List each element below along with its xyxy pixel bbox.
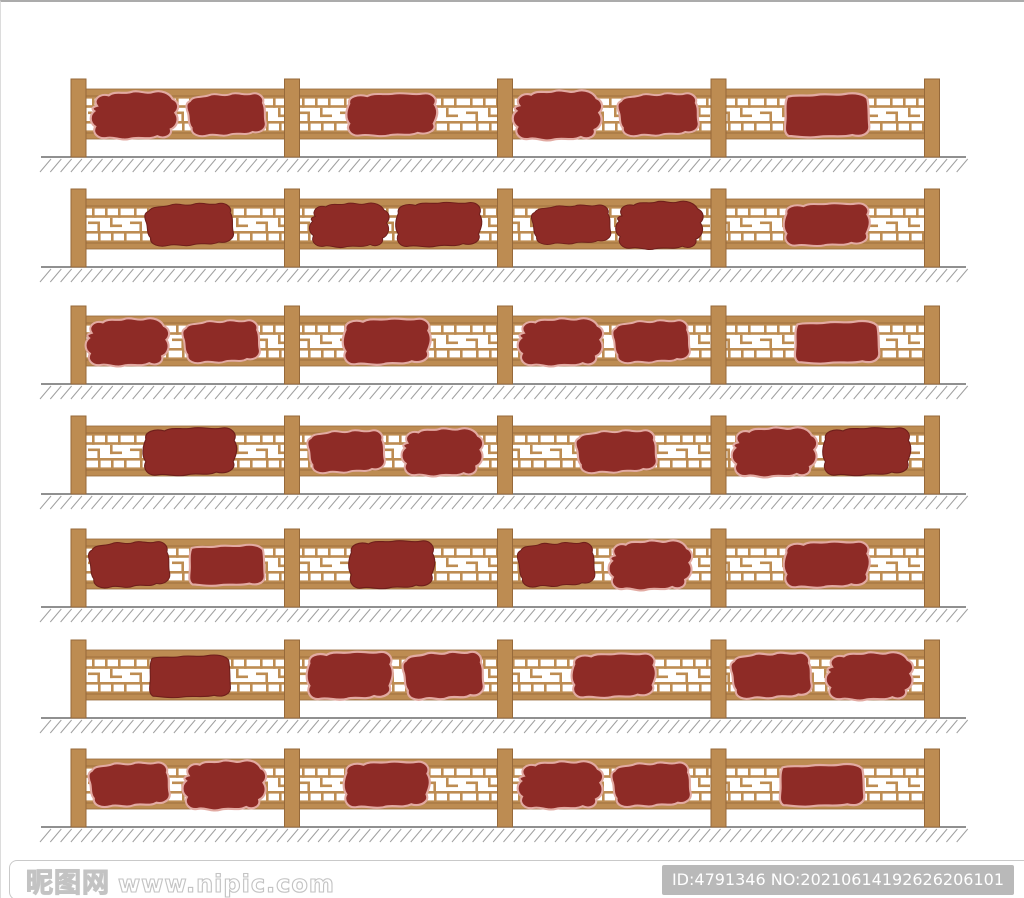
nipic-watermark: 昵图网www.nipic.com	[26, 861, 335, 898]
fence-post	[925, 416, 940, 494]
ground-hatch	[40, 386, 968, 399]
ground-hatch	[40, 720, 968, 733]
fence-post	[711, 416, 726, 494]
fence-post	[925, 79, 940, 157]
fence-post	[285, 306, 300, 384]
fence-post	[71, 529, 86, 607]
red-plaque	[513, 90, 602, 140]
railing-rows	[1, 2, 1024, 898]
red-plaque	[572, 653, 656, 698]
fence-post	[285, 749, 300, 827]
fence-post	[71, 640, 86, 718]
fence-post	[498, 640, 513, 718]
ground-hatch	[40, 829, 968, 842]
red-plaque	[150, 655, 231, 698]
red-plaque	[86, 318, 170, 366]
fence-post	[285, 189, 300, 267]
fence-post	[71, 189, 86, 267]
red-plaque	[576, 430, 657, 473]
red-plaque	[349, 541, 435, 589]
fence-post	[285, 79, 300, 157]
red-plaque	[182, 320, 260, 363]
red-plaque	[91, 91, 178, 139]
red-plaque	[823, 428, 911, 476]
ground-hatch	[40, 609, 968, 622]
red-plaque	[183, 760, 267, 810]
red-plaque	[403, 652, 484, 700]
red-plaque	[346, 93, 437, 136]
fence-post	[498, 306, 513, 384]
fence-post	[711, 306, 726, 384]
red-plaque	[402, 428, 484, 476]
fence-post	[925, 306, 940, 384]
fence-post	[711, 640, 726, 718]
ground-hatch	[40, 496, 968, 509]
red-plaque	[517, 542, 595, 587]
red-plaque	[731, 653, 812, 699]
red-plaque	[795, 321, 879, 364]
red-plaque	[344, 761, 430, 807]
fence-post	[285, 416, 300, 494]
fence-post	[711, 529, 726, 607]
red-plaque	[307, 652, 393, 700]
railing-elevation-row-3	[1, 296, 1024, 411]
fence-post	[711, 79, 726, 157]
red-plaque	[343, 318, 431, 364]
red-plaque	[89, 762, 170, 807]
railing-elevation-row-6	[1, 630, 1024, 745]
ground-hatch	[40, 159, 968, 172]
red-plaque	[189, 545, 264, 586]
railing-elevation-row-1	[1, 69, 1024, 184]
fence-post	[925, 189, 940, 267]
red-plaque	[618, 93, 699, 136]
red-plaque	[145, 203, 234, 246]
railing-elevation-row-5	[1, 519, 1024, 634]
red-plaque	[89, 542, 170, 588]
fence-post	[925, 529, 940, 607]
red-plaque	[396, 202, 482, 247]
fence-post	[498, 416, 513, 494]
fence-post	[71, 416, 86, 494]
red-plaque	[784, 541, 870, 587]
fence-post	[71, 79, 86, 157]
fence-post	[498, 189, 513, 267]
red-plaque	[616, 201, 703, 249]
fence-post	[711, 189, 726, 267]
red-plaque	[531, 205, 610, 244]
red-plaque	[307, 430, 385, 473]
fence-post	[498, 529, 513, 607]
red-plaque	[611, 762, 690, 807]
red-plaque	[732, 427, 817, 477]
red-plaque	[784, 203, 870, 246]
fence-post	[498, 749, 513, 827]
fence-post	[925, 749, 940, 827]
red-plaque	[826, 652, 913, 700]
fence-post	[925, 640, 940, 718]
nipic-url-text: www.nipic.com	[118, 870, 335, 898]
railing-elevation-row-7	[1, 739, 1024, 854]
red-plaque	[612, 320, 690, 363]
fence-post	[285, 640, 300, 718]
nipic-logo-text: 昵图网	[26, 868, 110, 898]
red-plaque	[309, 203, 389, 248]
red-plaque	[143, 428, 237, 476]
fence-post	[498, 79, 513, 157]
design-canvas: 昵图网www.nipic.com ID:4791346 NO:202106141…	[0, 0, 1024, 898]
red-plaque	[518, 761, 603, 809]
red-plaque	[780, 764, 864, 807]
image-id-badge: ID:4791346 NO:20210614192626206101	[662, 865, 1014, 895]
railing-elevation-row-2	[1, 179, 1024, 294]
fence-post	[71, 306, 86, 384]
red-plaque	[785, 93, 869, 137]
red-plaque	[186, 93, 265, 136]
ground-hatch	[40, 269, 968, 282]
red-plaque	[609, 540, 693, 590]
railing-elevation-row-4	[1, 406, 1024, 521]
watermark-bar: 昵图网www.nipic.com ID:4791346 NO:202106141…	[9, 860, 1024, 898]
red-plaque	[518, 318, 603, 366]
fence-post	[71, 749, 86, 827]
fence-post	[285, 529, 300, 607]
fence-post	[711, 749, 726, 827]
